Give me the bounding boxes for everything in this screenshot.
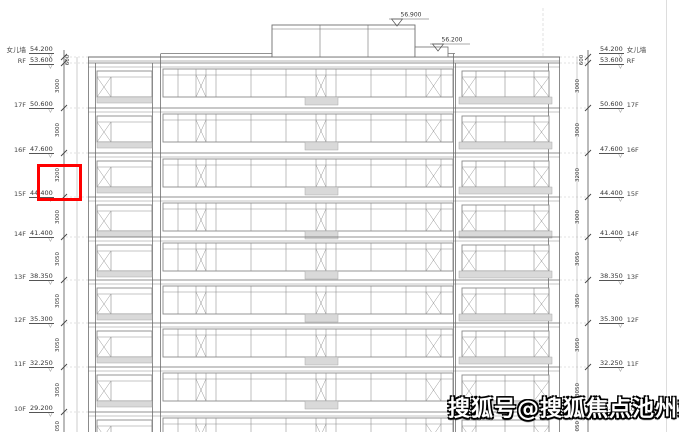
floor-label: 女儿墙 (2, 46, 26, 54)
floor-elevation: 47.600▽ (599, 145, 624, 154)
floor-elevation: 50.600▽ (29, 100, 54, 109)
floor-label: 14F (627, 230, 639, 238)
floor-level-row: 47.600▽16F (599, 145, 639, 154)
dim-text-right: 3050 (575, 294, 581, 308)
floor-level-row: 32.250▽11F (599, 359, 639, 368)
floor-label: 16F (627, 146, 639, 154)
red-highlight-box (37, 164, 82, 201)
floor-level-row: 13F38.350▽ (2, 272, 54, 281)
floor-label: 12F (627, 316, 639, 324)
floor-label: 11F (2, 360, 26, 368)
dim-text-left: 3000 (55, 79, 61, 93)
dim-text-left: 3000 (55, 123, 61, 137)
level-triangle-icon: ▽ (618, 152, 623, 160)
floor-level-row: 女儿墙54.200▽ (2, 45, 54, 54)
floor-level-row: 17F50.600▽ (2, 100, 54, 109)
watermark-text: 搜狐号@搜狐焦点池州站 (448, 397, 679, 422)
floor-level-row: 38.350▽13F (599, 272, 639, 281)
floor-level-row: 35.300▽12F (599, 315, 639, 324)
floor-elevation: 38.350▽ (29, 272, 54, 281)
dim-text-right: 600 (579, 54, 585, 65)
floor-elevation: 29.200▽ (29, 404, 54, 413)
floor-level-row: 50.600▽17F (599, 100, 639, 109)
level-triangle-icon: ▽ (48, 236, 53, 244)
floor-elevation: 50.600▽ (599, 100, 624, 109)
floor-level-row: 53.600▽RF (599, 56, 635, 65)
level-triangle-icon: ▽ (618, 236, 623, 244)
level-triangle-icon: ▽ (48, 279, 53, 287)
level-triangle-icon: ▽ (48, 63, 53, 71)
roof-level-value: 56.900 (401, 12, 422, 19)
level-triangle-icon: ▽ (618, 107, 623, 115)
dim-text-left: 3050 (55, 383, 61, 397)
floor-elevation: 35.300▽ (29, 315, 54, 324)
floor-elevation: 32.250▽ (599, 359, 624, 368)
floor-elevation: 41.400▽ (599, 229, 624, 238)
level-triangle-icon: ▽ (618, 279, 623, 287)
floor-label: RF (627, 57, 635, 65)
elevation-drawing: 6006003000300030003000320032003000300030… (0, 0, 679, 432)
building-facade (88, 54, 560, 432)
level-triangle-icon: ▽ (48, 152, 53, 160)
floor-label: 11F (627, 360, 639, 368)
dim-text-right: 3050 (575, 252, 581, 266)
dim-text-right: 3200 (575, 168, 581, 182)
elevation-page: 6006003000300030003000320032003000300030… (0, 0, 679, 432)
floor-label: 13F (2, 273, 26, 281)
floor-level-row: 10F29.200▽ (2, 404, 54, 413)
floor-label: 10F (2, 405, 26, 413)
floor-label: 17F (2, 101, 26, 109)
dim-text-right: 3000 (575, 79, 581, 93)
dim-text-left: 3050 (55, 421, 61, 432)
floor-level-row: 11F32.250▽ (2, 359, 54, 368)
dim-text-left: 3000 (55, 210, 61, 224)
level-triangle-icon: ▽ (48, 411, 53, 419)
floor-level-row: 54.200▽女儿墙 (599, 45, 646, 54)
floor-level-row: 16F47.600▽ (2, 145, 54, 154)
floor-label: 12F (2, 316, 26, 324)
floor-elevation: 47.600▽ (29, 145, 54, 154)
floor-level-row: 14F41.400▽ (2, 229, 54, 238)
level-triangle-icon: ▽ (618, 196, 623, 204)
level-triangle-icon: ▽ (618, 366, 623, 374)
floor-elevation: 54.200▽ (599, 45, 624, 54)
floor-label: RF (2, 57, 26, 65)
dim-text-left: 600 (65, 54, 71, 65)
floor-label: 14F (2, 230, 26, 238)
dim-text-right: 3000 (575, 123, 581, 137)
floor-label: 17F (627, 101, 639, 109)
floor-elevation: 53.600▽ (29, 56, 54, 65)
level-triangle-icon: ▽ (618, 63, 623, 71)
floor-label: 女儿墙 (627, 46, 647, 54)
floor-elevation: 54.200▽ (29, 45, 54, 54)
floor-elevation: 44.400▽ (599, 189, 624, 198)
level-triangle-icon: ▽ (48, 366, 53, 374)
floor-level-row: 41.400▽14F (599, 229, 639, 238)
floor-elevation: 38.350▽ (599, 272, 624, 281)
floor-level-row: 44.400▽15F (599, 189, 639, 198)
floor-label: 15F (2, 190, 26, 198)
dim-text-right: 3000 (575, 210, 581, 224)
floor-elevation: 35.300▽ (599, 315, 624, 324)
level-triangle-icon: ▽ (48, 322, 53, 330)
floor-label: 13F (627, 273, 639, 281)
floor-elevation: 32.250▽ (29, 359, 54, 368)
floor-elevation: 53.600▽ (599, 56, 624, 65)
dim-text-right: 3050 (575, 338, 581, 352)
dim-text-left: 3050 (55, 252, 61, 266)
level-triangle-icon: ▽ (48, 107, 53, 115)
dim-text-left: 3050 (55, 338, 61, 352)
floor-label: 15F (627, 190, 639, 198)
floor-label: 16F (2, 146, 26, 154)
level-triangle-icon: ▽ (618, 322, 623, 330)
roof-level-value: 56.200 (442, 37, 463, 44)
floor-level-row: 12F35.300▽ (2, 315, 54, 324)
floor-level-row: RF53.600▽ (2, 56, 54, 65)
floor-elevation: 41.400▽ (29, 229, 54, 238)
dim-text-left: 3050 (55, 294, 61, 308)
watermark: 搜狐号@搜狐焦点池州站 (448, 391, 679, 423)
